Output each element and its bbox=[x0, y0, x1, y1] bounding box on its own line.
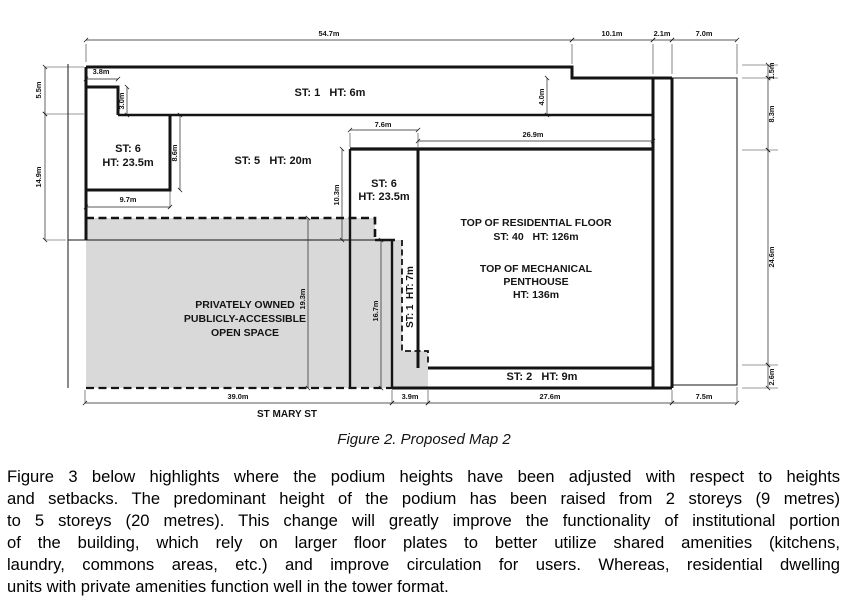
pops-label-1: PRIVATELY OWNED bbox=[195, 299, 295, 311]
dim-3-8: 3.8m bbox=[93, 67, 110, 76]
zone-st2-base: ST: 2 HT: 9m bbox=[507, 371, 578, 383]
paragraph-line: units with private amenities function we… bbox=[7, 576, 840, 598]
dim-right-1: 1.5m bbox=[767, 62, 776, 79]
pops-label-2: PUBLICLY-ACCESSIBLE bbox=[184, 313, 306, 325]
zone-st6-left-2: HT: 23.5m bbox=[102, 157, 154, 169]
dim-bottom-3: 27.6m bbox=[540, 392, 561, 401]
tower-label-4: PENTHOUSE bbox=[503, 276, 568, 288]
paragraph-line: to 5 storeys (20 metres). This change wi… bbox=[7, 510, 840, 532]
paragraph-line: laundry, commons areas, etc.) and improv… bbox=[7, 554, 840, 576]
proposed-map-figure: 54.7m 10.1m 2.1m 7.0m 5.5m 14.9m 1.5m 8.… bbox=[0, 0, 849, 456]
zone-st1-top: ST: 1 HT: 6m bbox=[295, 87, 366, 99]
figure-caption: Figure 2. Proposed Map 2 bbox=[337, 431, 511, 448]
tower-label-3: TOP OF MECHANICAL bbox=[480, 263, 593, 275]
dim-8-6: 8.6m bbox=[170, 144, 179, 161]
paragraph-line: Figure 3 below highlights where the podi… bbox=[7, 466, 840, 488]
dim-3-0: 3.0m bbox=[117, 92, 126, 109]
dim-19-3: 19.3m bbox=[298, 288, 307, 309]
dim-10-3: 10.3m bbox=[332, 184, 341, 205]
dim-9-7: 9.7m bbox=[120, 195, 137, 204]
zone-st6-mid-1: ST: 6 bbox=[371, 178, 397, 190]
paragraph-line: and setbacks. The predominant height of … bbox=[7, 488, 840, 510]
zone-st5: ST: 5 HT: 20m bbox=[234, 155, 311, 167]
tower-label-5: HT: 136m bbox=[513, 289, 559, 301]
dim-bottom-2: 3.9m bbox=[402, 392, 419, 401]
dim-left-1: 5.5m bbox=[34, 81, 43, 98]
dim-right-2: 8.3m bbox=[767, 105, 776, 122]
dim-top-3: 2.1m bbox=[654, 29, 671, 38]
pops-label-3: OPEN SPACE bbox=[211, 327, 279, 339]
dim-7-6: 7.6m bbox=[375, 120, 392, 129]
street-label: ST MARY ST bbox=[257, 409, 317, 420]
dim-left-2: 14.9m bbox=[34, 166, 43, 187]
tower-label-1: TOP OF RESIDENTIAL FLOOR bbox=[460, 217, 612, 229]
dim-bottom-1: 39.0m bbox=[228, 392, 249, 401]
dim-top-4: 7.0m bbox=[696, 29, 713, 38]
tower-label-2: ST: 40 HT: 126m bbox=[493, 231, 578, 243]
body-paragraph: Figure 3 below highlights where the podi… bbox=[7, 466, 840, 598]
dim-top-1: 54.7m bbox=[319, 29, 340, 38]
zone-st6-left-1: ST: 6 bbox=[115, 143, 141, 155]
dim-bottom-4: 7.5m bbox=[696, 392, 713, 401]
dim-top-2: 10.1m bbox=[602, 29, 623, 38]
dim-16-7: 16.7m bbox=[371, 300, 380, 321]
zone-st6-mid-2: HT: 23.5m bbox=[358, 191, 410, 203]
document-page: 54.7m 10.1m 2.1m 7.0m 5.5m 14.9m 1.5m 8.… bbox=[0, 0, 849, 610]
dim-right-3: 24.6m bbox=[767, 246, 776, 267]
dim-26-9: 26.9m bbox=[523, 130, 544, 139]
dim-4-0: 4.0m bbox=[537, 88, 546, 105]
paragraph-line: of the building, which rely on larger fl… bbox=[7, 532, 840, 554]
zone-st1-strip: ST: 1 HT: 7m bbox=[405, 266, 416, 328]
dim-right-4: 2.6m bbox=[767, 368, 776, 385]
